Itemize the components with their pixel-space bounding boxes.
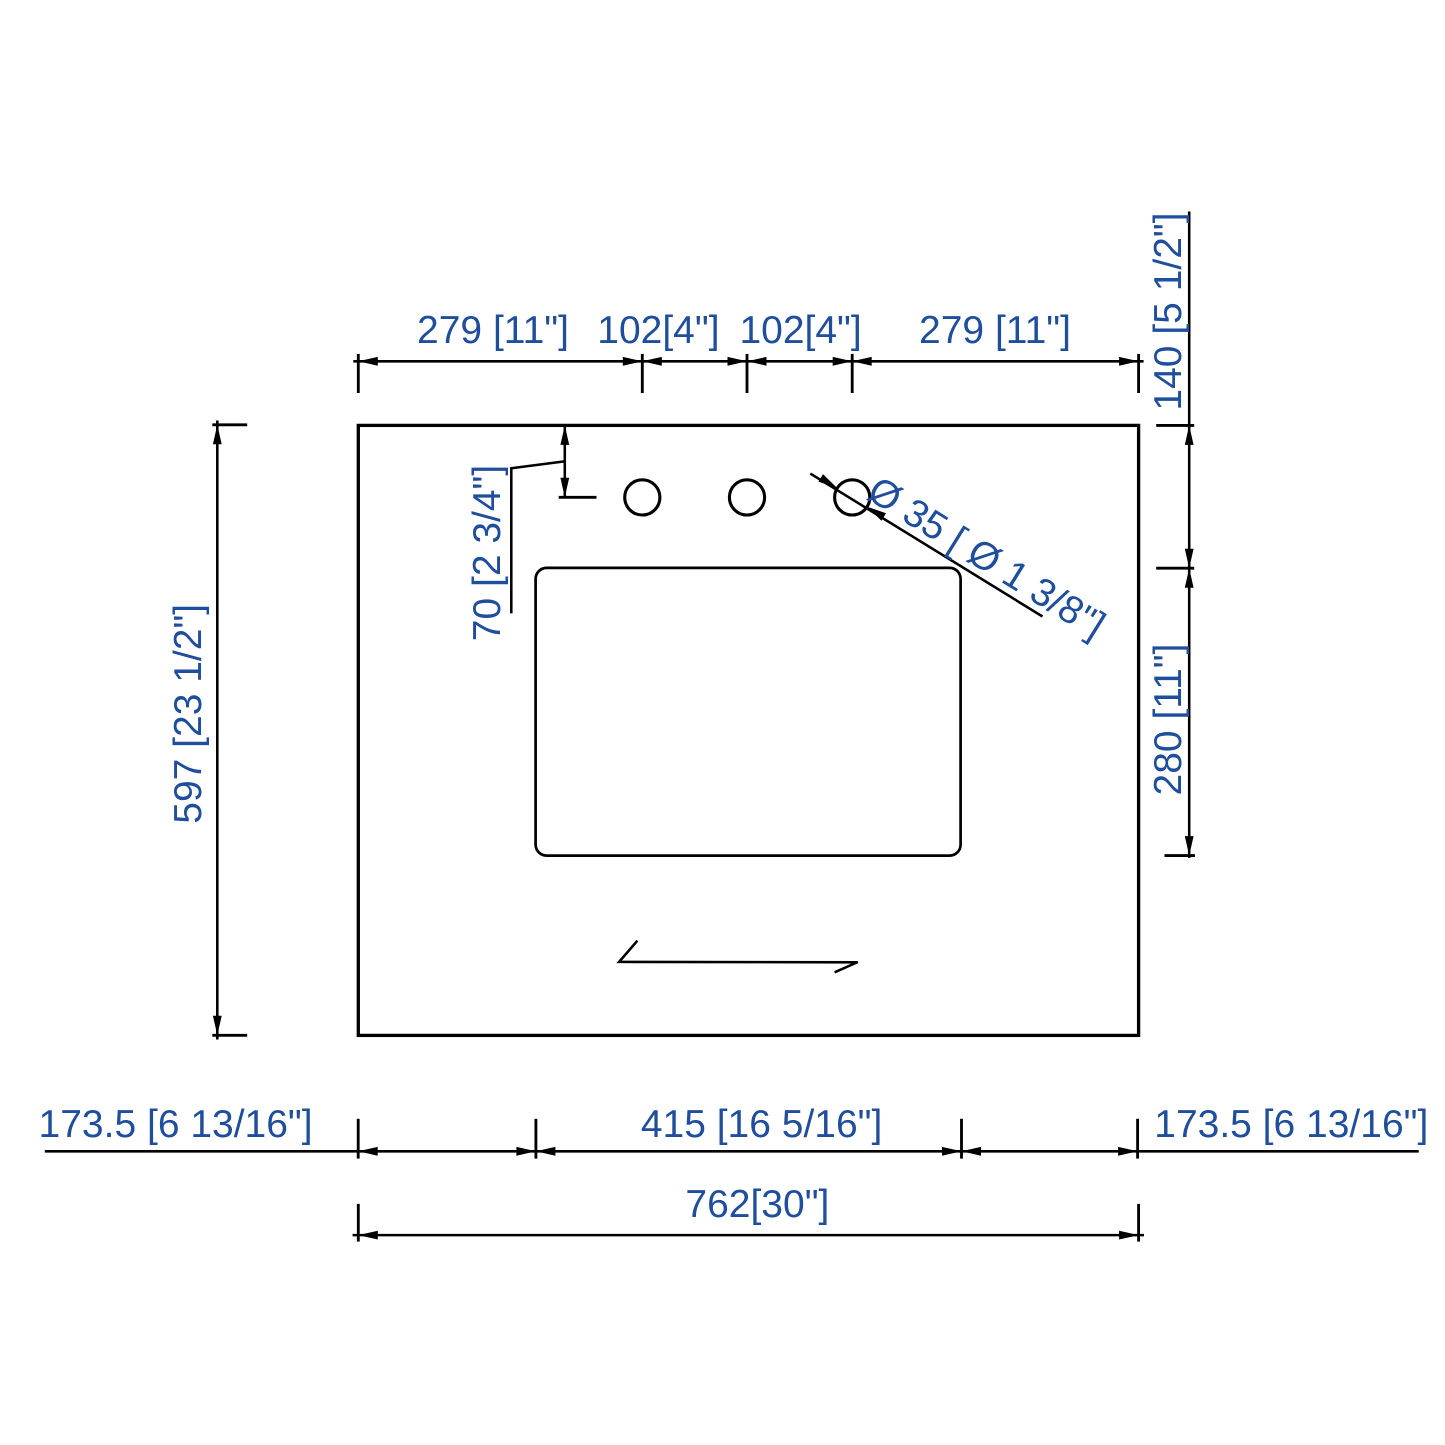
svg-text:173.5 [6 13/16"]: 173.5 [6 13/16"] (1154, 1103, 1428, 1146)
svg-text:140 [5 1/2"]: 140 [5 1/2"] (1147, 212, 1190, 410)
svg-text:280 [11"]: 280 [11"] (1147, 644, 1190, 796)
svg-text:415 [16 5/16"]: 415 [16 5/16"] (641, 1103, 883, 1146)
svg-text:102[4"]: 102[4"] (597, 309, 719, 352)
svg-text:597 [23 1/2"]: 597 [23 1/2"] (167, 604, 210, 824)
svg-text:762[30"]: 762[30"] (685, 1183, 829, 1226)
svg-text:70 [2 3/4"]: 70 [2 3/4"] (466, 465, 509, 641)
svg-text:279 [11"]: 279 [11"] (919, 309, 1071, 352)
svg-text:102[4"]: 102[4"] (739, 309, 861, 352)
svg-text:279 [11"]: 279 [11"] (417, 309, 569, 352)
svg-text:173.5 [6 13/16"]: 173.5 [6 13/16"] (39, 1103, 313, 1146)
